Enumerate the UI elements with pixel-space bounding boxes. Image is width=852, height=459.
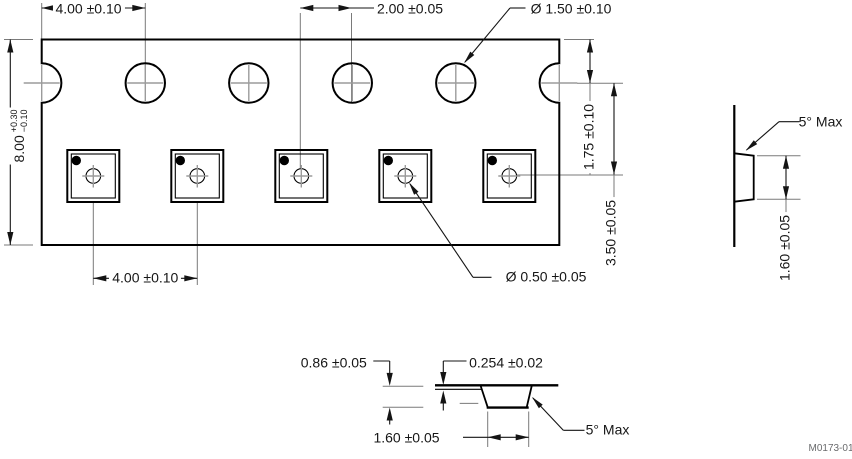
- component-pocket: [275, 150, 327, 202]
- tape-width-tolerance: +0.30 −0.10: [9, 109, 29, 132]
- component-pocket: [67, 150, 119, 202]
- section-pocket-width-label: 1.60 ±0.05: [373, 430, 439, 445]
- tape-width-tol-plus: +0.30: [9, 109, 19, 132]
- section-draft-angle-label: 5° Max: [586, 423, 630, 438]
- dim-section-pocket-width: [463, 434, 529, 440]
- drawing-canvas: [0, 0, 852, 459]
- section-pocket-depth-label: 0.86 ±0.05: [301, 355, 367, 370]
- dim-sprocket-to-pocket-label: 3.50 ±0.05: [604, 197, 619, 269]
- pocket-profile: [734, 153, 753, 201]
- dim-tape-width-label: 8.00 +0.30 −0.10: [9, 107, 29, 164]
- component-pocket: [171, 150, 223, 202]
- dim-edge-to-sprocket-label: 1.75 ±0.10: [582, 101, 597, 173]
- dim-sprocket-dia-label: Ø 1.50 ±0.10: [531, 1, 612, 16]
- dim-pocket-to-sprocket: [300, 5, 374, 11]
- section-tape-thickness-label: 0.254 ±0.02: [469, 355, 543, 370]
- component-pockets: [67, 150, 535, 202]
- side-draft-angle-label: 5° Max: [799, 115, 843, 130]
- dim-sprocket-to-pocket: [611, 83, 617, 174]
- orientation-dot: [72, 156, 81, 165]
- orientation-dot: [280, 156, 289, 165]
- dim-pocket-pitch-label: 4.00 ±0.10: [109, 271, 181, 286]
- component-pocket: [483, 150, 535, 202]
- pocket-section-walls: [481, 386, 532, 407]
- dim-pocket-to-sprocket-label: 2.00 ±0.05: [377, 1, 443, 16]
- technical-drawing: 4.00 ±0.10 2.00 ±0.05 Ø 1.50 ±0.10 1.75 …: [0, 0, 852, 459]
- side-view: [734, 105, 753, 247]
- component-pocket: [379, 150, 431, 202]
- dim-center-hole-label: Ø 0.50 ±0.05: [506, 269, 587, 284]
- tape-width-tol-minus: −0.10: [19, 109, 29, 132]
- leader-center-hole-dia: [409, 183, 492, 278]
- tape-width-value: 8.00: [12, 135, 27, 162]
- dim-sprocket-pitch-label: 4.00 ±0.10: [52, 1, 124, 16]
- sheet-code: M0173-01: [808, 443, 852, 454]
- leader-side-draft-angle: [746, 122, 800, 151]
- leader-section-draft-angle: [532, 397, 585, 430]
- orientation-dot: [176, 156, 185, 165]
- leader-sprocket-dia: [464, 8, 526, 63]
- orientation-dot: [384, 156, 393, 165]
- dim-pocket-depth: [373, 361, 393, 425]
- extension-lines: [4, 3, 801, 447]
- orientation-dot: [488, 156, 497, 165]
- dim-edge-to-sprocket: [587, 40, 593, 84]
- side-pocket-height-label: 1.60 ±0.05: [777, 211, 792, 283]
- dim-side-pocket-height: [783, 156, 789, 200]
